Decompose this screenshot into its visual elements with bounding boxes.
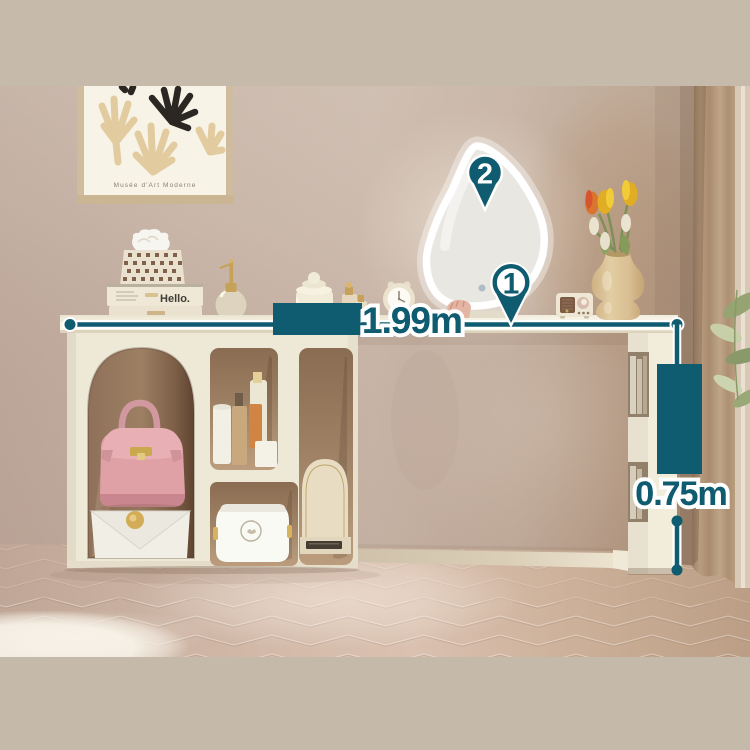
svg-text:Musée d'Art Moderne: Musée d'Art Moderne [114, 182, 197, 189]
svg-text:0.75m: 0.75m [635, 475, 726, 513]
svg-text:1: 1 [503, 268, 520, 301]
svg-text:Hello.: Hello. [160, 293, 190, 305]
svg-text:2: 2 [477, 159, 493, 191]
svg-text:1.99m: 1.99m [362, 300, 462, 341]
